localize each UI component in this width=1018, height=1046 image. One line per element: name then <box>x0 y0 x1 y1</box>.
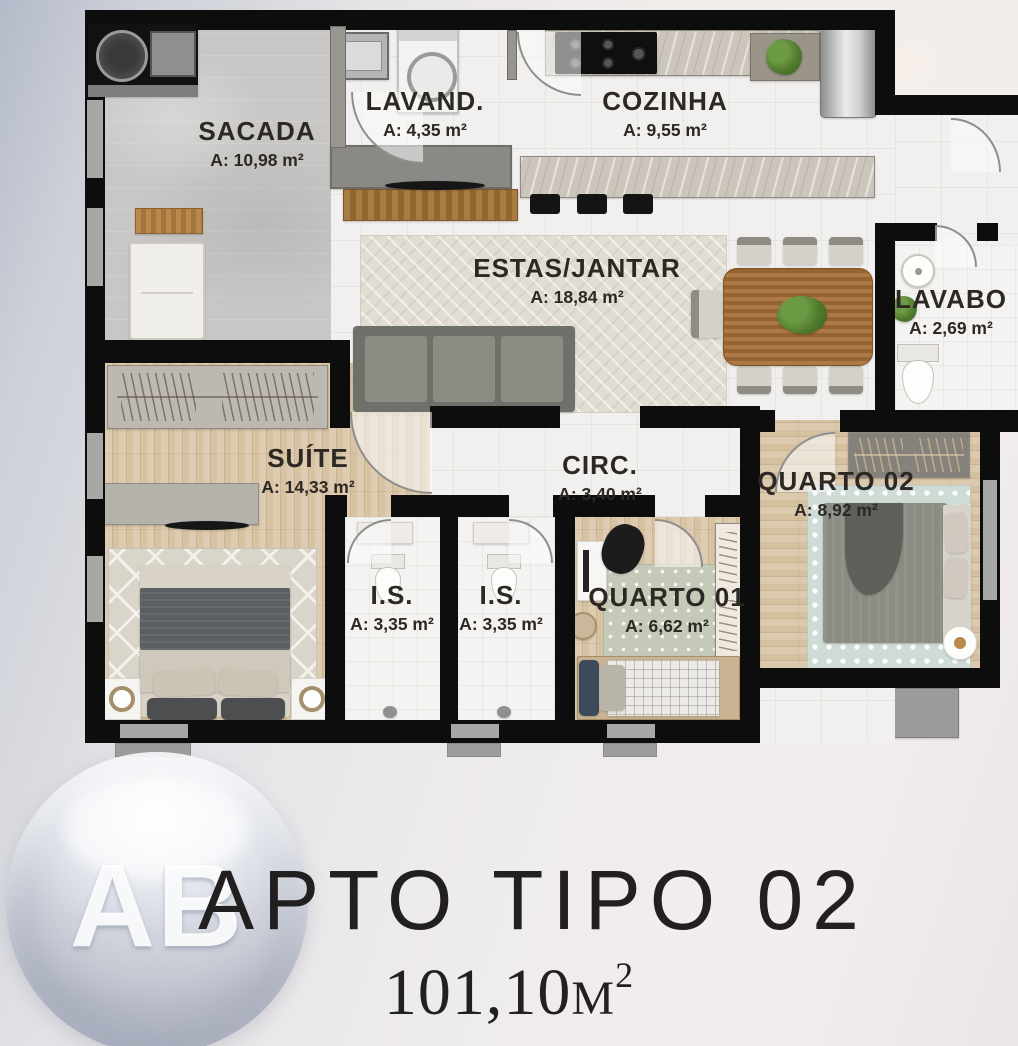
wall-lavabo-top-r <box>977 223 998 241</box>
wall-is2-q01 <box>555 517 575 720</box>
wall-sacada-living <box>330 340 350 428</box>
window-suite-2 <box>87 556 103 622</box>
sacada-sofa <box>129 242 205 340</box>
area-superscript: 2 <box>615 955 634 995</box>
area-unit: M <box>571 972 615 1025</box>
dining-chair-6 <box>829 366 863 394</box>
dining-chair-5 <box>783 366 817 394</box>
room-label-lavabo: LAVABO A: 2,69 m² <box>895 284 1007 339</box>
room-label-is2: I.S. A: 3,35 m² <box>459 580 543 635</box>
room-label-suite: SUÍTE A: 14,33 m² <box>261 443 354 498</box>
sofa-cushion-2 <box>433 336 495 402</box>
floor-plan-page: SACADA A: 10,98 m² LAVAND. A: 4,35 m² CO… <box>0 0 1018 1046</box>
room-label-cozinha: COZINHA A: 9,55 m² <box>602 86 727 141</box>
wall-circ-q02 <box>740 420 760 720</box>
wall-living-suite <box>430 406 560 428</box>
wall-sacada-suite <box>85 340 347 363</box>
window-sill-3 <box>603 743 657 757</box>
window-bottom-1 <box>120 724 188 738</box>
dining-chair-7 <box>691 290 721 338</box>
room-name: COZINHA <box>602 86 727 117</box>
dining-chair-2 <box>783 237 817 265</box>
dining-chair-1 <box>737 237 771 265</box>
wall-lavabo-top-l <box>895 223 937 241</box>
floor-plan: SACADA A: 10,98 m² LAVAND. A: 4,35 m² CO… <box>85 8 1018 764</box>
room-name: LAVABO <box>895 284 1007 315</box>
wall-q02-bottom <box>745 668 990 688</box>
room-label-circ: CIRC. A: 3,40 m² <box>558 450 642 505</box>
window-suite-1 <box>87 433 103 499</box>
dining-chair-3 <box>829 237 863 265</box>
sofa-cushion-line <box>141 292 193 294</box>
q02-pillow-1 <box>944 512 969 553</box>
room-label-is1: I.S. A: 3,35 m² <box>350 580 434 635</box>
stool-3 <box>623 194 653 214</box>
wall-suite-is1 <box>325 495 345 720</box>
living-sofa <box>353 326 575 412</box>
suite-tv-icon <box>165 521 249 530</box>
wall-lavabo-left <box>875 223 895 430</box>
stool-2 <box>577 194 607 214</box>
suite-wardrobe <box>107 365 328 429</box>
sofa-cushion-1 <box>365 336 427 402</box>
room-area: A: 2,69 m² <box>895 318 1007 339</box>
pillar-sacada <box>330 26 346 148</box>
plant-kitchen <box>766 39 802 75</box>
lamp-icon <box>109 686 135 712</box>
room-name: QUARTO 01 <box>588 582 745 613</box>
room-area: A: 6,62 m² <box>588 616 745 637</box>
room-area: A: 3,40 m² <box>558 484 642 505</box>
window-sacada-1 <box>87 100 103 178</box>
room-name: ESTAS/JANTAR <box>473 253 681 284</box>
room-name: QUARTO 02 <box>757 466 914 497</box>
window-q02 <box>983 480 997 600</box>
lavabo-sink-icon <box>901 254 935 288</box>
wall-lavabo-bottom <box>840 410 1018 432</box>
total-area: 101,10M2 <box>0 955 1018 1031</box>
room-name: SUÍTE <box>261 443 354 474</box>
hanger-icons <box>719 532 737 583</box>
q02-pillow-2 <box>944 557 969 598</box>
kitchen-island <box>520 156 875 198</box>
grill-icon <box>96 30 148 82</box>
room-label-estas-jantar: ESTAS/JANTAR A: 18,84 m² <box>473 253 681 308</box>
room-area: A: 18,84 m² <box>473 287 681 308</box>
wall-is1-is2 <box>440 517 458 720</box>
is2-towel-knob <box>497 706 511 718</box>
room-name: I.S. <box>459 580 543 611</box>
bbq-counter-edge <box>88 85 198 97</box>
room-area: A: 3,35 m² <box>459 614 543 635</box>
q01-pillow-gray <box>599 665 625 711</box>
nightstand-left <box>101 678 141 720</box>
bbq-counter <box>88 23 198 85</box>
dining-chair-4 <box>737 366 771 394</box>
room-name: CIRC. <box>558 450 642 481</box>
sacada-table <box>135 208 203 234</box>
area-value: 101,10 <box>384 956 572 1029</box>
room-area: A: 9,55 m² <box>602 120 727 141</box>
room-name: LAVAND. <box>366 86 485 117</box>
room-area: A: 8,92 m² <box>757 500 914 521</box>
room-area: A: 14,33 m² <box>261 477 354 498</box>
suite-tv-cabinet <box>103 483 259 525</box>
bbq-sink-icon <box>150 31 196 77</box>
pillar-kitchen <box>507 30 517 80</box>
room-label-quarto02: QUARTO 02 A: 8,92 m² <box>757 466 914 521</box>
stool-1 <box>530 194 560 214</box>
room-label-sacada: SACADA A: 10,98 m² <box>198 116 315 171</box>
fridge-icon <box>820 28 877 118</box>
wall-hall-seg4 <box>705 495 740 517</box>
q01-pillow-navy <box>579 660 599 716</box>
lavabo-sink-drain <box>915 268 922 275</box>
room-area: A: 3,35 m² <box>350 614 434 635</box>
window-sacada-2 <box>87 208 103 286</box>
wall-hall-seg2 <box>391 495 509 517</box>
page-title: APTO TIPO 02 <box>48 852 1018 949</box>
room-label-lavand: LAVAND. A: 4,35 m² <box>366 86 485 141</box>
room-area: A: 4,35 m² <box>366 120 485 141</box>
laundry-sink-basin <box>344 41 382 71</box>
wall-notch-horiz <box>875 95 1018 115</box>
is1-towel-knob <box>383 706 397 718</box>
room-area: A: 10,98 m² <box>198 150 315 171</box>
suite-pillow-2 <box>218 669 277 698</box>
suite-pillow-4 <box>221 698 285 720</box>
tv-icon <box>385 181 485 190</box>
q02-side-table-bowl <box>954 637 966 649</box>
wardrobe-rod <box>854 454 964 456</box>
window-bottom-3 <box>607 724 655 738</box>
washer-panel <box>399 30 457 41</box>
tv-rack <box>343 189 518 221</box>
wall-top <box>85 10 895 30</box>
room-label-quarto01: QUARTO 01 A: 6,62 m² <box>588 582 745 637</box>
room-name: I.S. <box>350 580 434 611</box>
q02-side-table <box>943 626 977 660</box>
wardrobe-rod <box>117 396 319 398</box>
suite-pillow-1 <box>152 668 215 697</box>
suite-bed-blanket <box>140 588 290 650</box>
plant-dining <box>777 296 827 334</box>
window-sill-2 <box>447 743 501 757</box>
suite-pillow-3 <box>147 698 217 720</box>
sofa-cushion-3 <box>501 336 563 402</box>
window-bottom-2 <box>451 724 499 738</box>
room-name: SACADA <box>198 116 315 147</box>
plan-footer: APTO TIPO 02 101,10M2 <box>0 852 1018 1031</box>
lamp-icon <box>299 686 325 712</box>
